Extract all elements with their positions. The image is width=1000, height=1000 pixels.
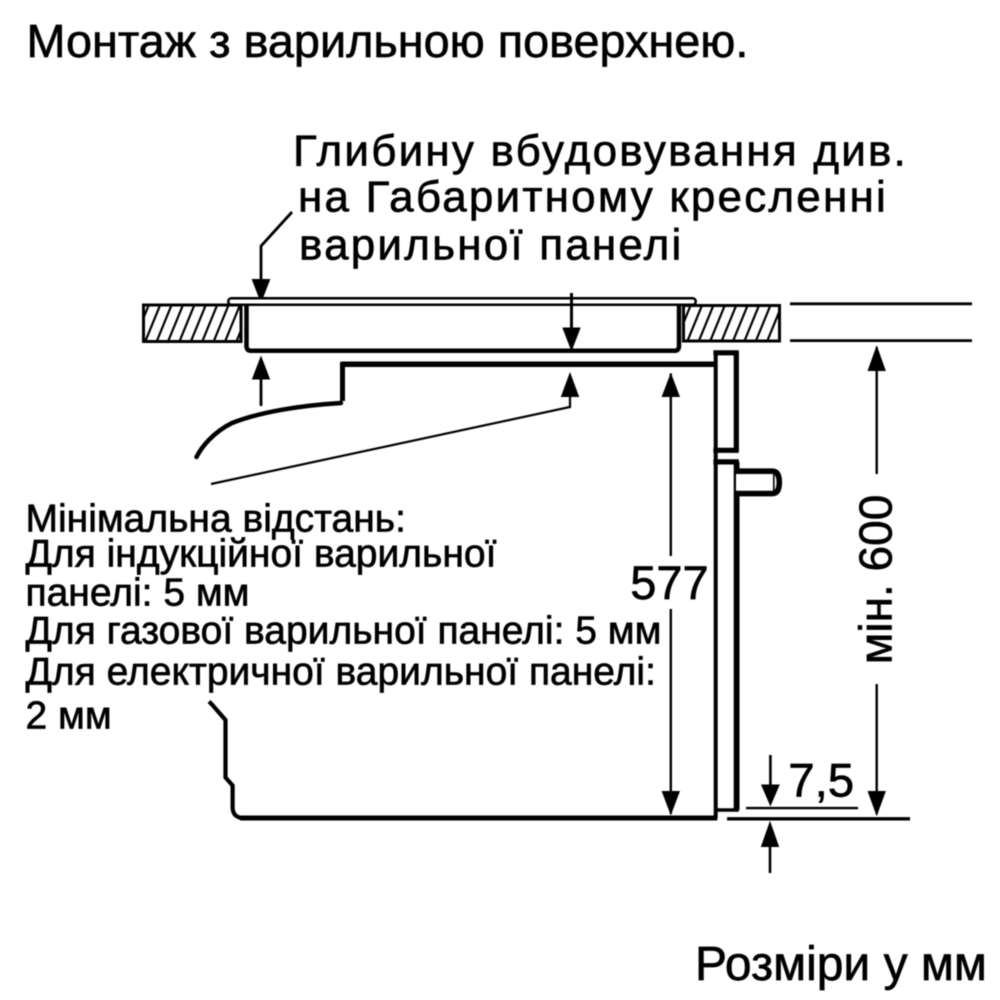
svg-text:Для індукційної варильної: Для індукційної варильної <box>26 533 497 576</box>
svg-text:Розміри у мм: Розміри у мм <box>695 938 987 991</box>
svg-text:варильної панелі: варильної панелі <box>299 221 683 270</box>
svg-text:Для електричної варильної пане: Для електричної варильної панелі: <box>26 651 656 694</box>
svg-text:на Габаритному кресленні: на Габаритному кресленні <box>298 173 888 222</box>
svg-text:2 мм: 2 мм <box>26 695 112 738</box>
svg-text:577: 577 <box>630 556 708 609</box>
svg-text:7,5: 7,5 <box>788 755 854 808</box>
svg-text:панелі: 5 мм: панелі: 5 мм <box>26 572 250 615</box>
svg-text:мін. 600: мін. 600 <box>850 495 902 665</box>
svg-text:Для газової варильної панелі:: Для газової варильної панелі: 5 мм <box>26 610 662 653</box>
svg-text:Монтаж з варильною поверхнею.: Монтаж з варильною поверхнею. <box>27 15 749 67</box>
svg-text:Глибину вбудовування див.: Глибину вбудовування див. <box>293 127 908 176</box>
